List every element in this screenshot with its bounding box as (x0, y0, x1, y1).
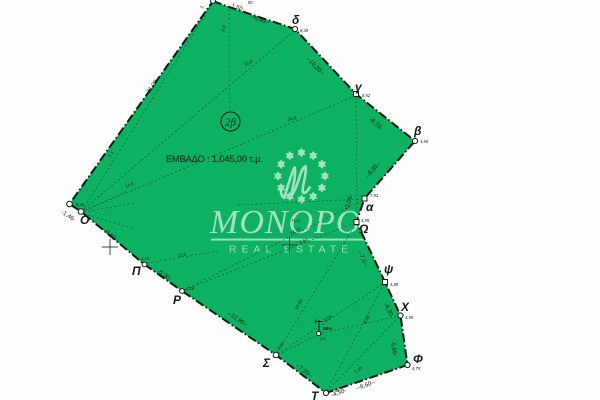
svg-text:1,0: 1,0 (320, 336, 326, 341)
svg-text:Π.Ο: Π.Ο (292, 218, 301, 223)
svg-text:Φ: Φ (413, 352, 423, 366)
svg-text:4,59: 4,59 (405, 315, 414, 320)
svg-text:1,16: 1,16 (186, 286, 195, 291)
svg-text:ΔΕΗ: ΔΕΗ (323, 326, 333, 331)
svg-text:ψ: ψ (384, 262, 394, 276)
svg-text:Ω: Ω (358, 222, 369, 236)
svg-text:60: 60 (248, 0, 253, 5)
svg-text:2β: 2β (225, 117, 237, 129)
svg-text:ΕΜΒΑΔΟ : 1.045,00 τ.μ.: ΕΜΒΑΔΟ : 1.045,00 τ.μ. (166, 154, 263, 164)
svg-text:4,79: 4,79 (412, 366, 421, 371)
svg-text:α: α (366, 200, 374, 214)
svg-text:Σ: Σ (262, 356, 271, 370)
svg-text:Π: Π (132, 264, 141, 278)
svg-text:7,91: 7,91 (370, 193, 378, 198)
svg-text:1,15: 1,15 (141, 256, 150, 261)
svg-text:8,49: 8,49 (300, 28, 309, 33)
svg-text:8,52: 8,52 (362, 93, 371, 98)
svg-text:4,89: 4,89 (390, 282, 399, 287)
svg-text:δ: δ (292, 13, 300, 27)
svg-text:Ρ: Ρ (173, 293, 182, 307)
svg-text:4,58: 4,58 (420, 139, 429, 144)
svg-text:β: β (413, 124, 422, 138)
svg-text:4,95: 4,95 (361, 218, 370, 223)
svg-text:Χ: Χ (400, 300, 410, 314)
svg-text:5,46: 5,46 (76, 202, 85, 207)
svg-text:Ο: Ο (80, 213, 90, 227)
